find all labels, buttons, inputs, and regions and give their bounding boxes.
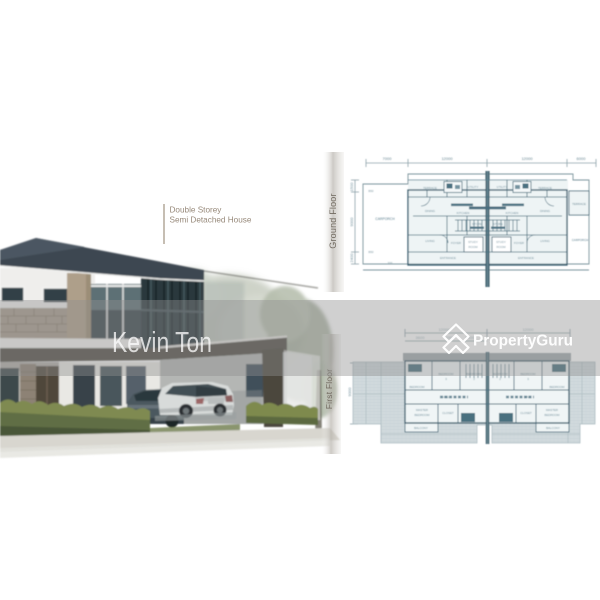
svg-text:STORE: STORE bbox=[493, 222, 503, 226]
svg-text:ENTRANCE: ENTRANCE bbox=[518, 256, 534, 260]
svg-text:CLOSET: CLOSET bbox=[442, 411, 454, 415]
svg-text:FOYER: FOYER bbox=[514, 241, 524, 245]
svg-text:TERRACE: TERRACE bbox=[538, 186, 552, 190]
svg-text:BEDROOM: BEDROOM bbox=[545, 413, 561, 417]
svg-text:LIVING: LIVING bbox=[425, 239, 435, 243]
svg-text:KITCHEN: KITCHEN bbox=[506, 211, 519, 215]
svg-text:PropertyGuru: PropertyGuru bbox=[473, 333, 573, 350]
svg-text:Ground Floor: Ground Floor bbox=[328, 193, 338, 248]
svg-text:UTILITY: UTILITY bbox=[497, 185, 508, 189]
svg-text:DINING: DINING bbox=[425, 209, 436, 213]
svg-text:CARPORCH: CARPORCH bbox=[572, 238, 589, 242]
svg-text:MASTER: MASTER bbox=[546, 408, 558, 412]
svg-text:ROOM: ROOM bbox=[469, 245, 479, 249]
svg-text:BEDROOM: BEDROOM bbox=[415, 413, 431, 417]
svg-text:ROOM: ROOM bbox=[497, 245, 507, 249]
svg-text:B50: B50 bbox=[369, 189, 374, 193]
svg-text:9000: 9000 bbox=[349, 217, 354, 227]
svg-text:Semi Detached House: Semi Detached House bbox=[170, 216, 252, 225]
svg-text:DINING: DINING bbox=[540, 209, 551, 213]
svg-text:KITCHEN: KITCHEN bbox=[457, 211, 470, 215]
svg-text:MASTER: MASTER bbox=[416, 408, 428, 412]
svg-text:BEDROOM: BEDROOM bbox=[410, 385, 426, 389]
svg-text:STUDY: STUDY bbox=[468, 240, 478, 244]
svg-text:6000: 6000 bbox=[577, 156, 587, 161]
svg-text:9000: 9000 bbox=[347, 387, 352, 397]
svg-text:Double Storey: Double Storey bbox=[170, 206, 223, 215]
svg-text:7000: 7000 bbox=[383, 156, 393, 161]
svg-text:1500: 1500 bbox=[349, 182, 354, 192]
svg-text:Kevin Ton: Kevin Ton bbox=[112, 327, 212, 359]
svg-text:CARPORCH: CARPORCH bbox=[375, 217, 395, 221]
svg-text:HALL: HALL bbox=[524, 395, 532, 399]
svg-text:STORE: STORE bbox=[472, 222, 482, 226]
svg-text:LIVING: LIVING bbox=[540, 239, 550, 243]
svg-text:12000: 12000 bbox=[441, 156, 453, 161]
svg-text:HALL: HALL bbox=[442, 395, 450, 399]
svg-text:STUDY: STUDY bbox=[496, 240, 506, 244]
svg-text:2400: 2400 bbox=[349, 253, 354, 263]
svg-text:BALCONY: BALCONY bbox=[546, 426, 560, 430]
svg-text:B50: B50 bbox=[369, 250, 374, 254]
svg-text:ENTRANCE: ENTRANCE bbox=[440, 256, 456, 260]
svg-text:BALCONY: BALCONY bbox=[414, 426, 428, 430]
svg-text:FOYER: FOYER bbox=[451, 241, 461, 245]
svg-text:BEDROOM: BEDROOM bbox=[550, 385, 566, 389]
svg-text:TERRACE: TERRACE bbox=[572, 202, 586, 206]
svg-text:UTILITY: UTILITY bbox=[468, 185, 479, 189]
svg-text:TERRACE: TERRACE bbox=[423, 186, 437, 190]
svg-text:CLOSET: CLOSET bbox=[520, 411, 532, 415]
svg-text:12000: 12000 bbox=[521, 156, 533, 161]
